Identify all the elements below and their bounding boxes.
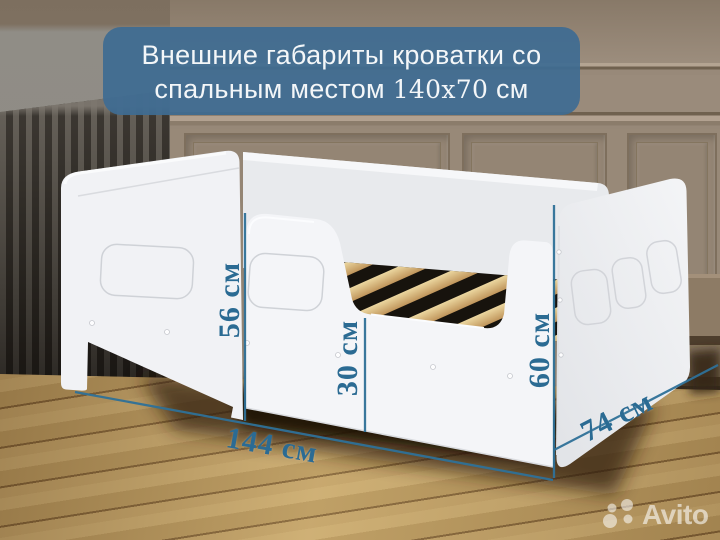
dimension-label-56: 56 см [213, 262, 247, 338]
banner-line2-dimensions: 140х70 [393, 75, 488, 104]
banner-title-line2: спальным местом 140х70 см [103, 72, 580, 107]
title-banner: Внешние габариты кроватки со спальным ме… [103, 27, 580, 115]
banner-line2-unit: см [496, 74, 529, 104]
banner-title-line1: Внешние габариты кроватки со [103, 38, 580, 72]
dimension-label-30: 30 см [331, 320, 365, 396]
banner-line2-text: спальным местом [154, 74, 385, 104]
product-photo-scene: 56 см 30 см 60 см 144 см 74 см Внешние г… [0, 0, 720, 540]
avito-logo-icon [598, 497, 642, 533]
watermark: Avito [598, 497, 718, 535]
dimension-label-60: 60 см [523, 312, 557, 388]
avito-wordmark: Avito [642, 499, 708, 531]
